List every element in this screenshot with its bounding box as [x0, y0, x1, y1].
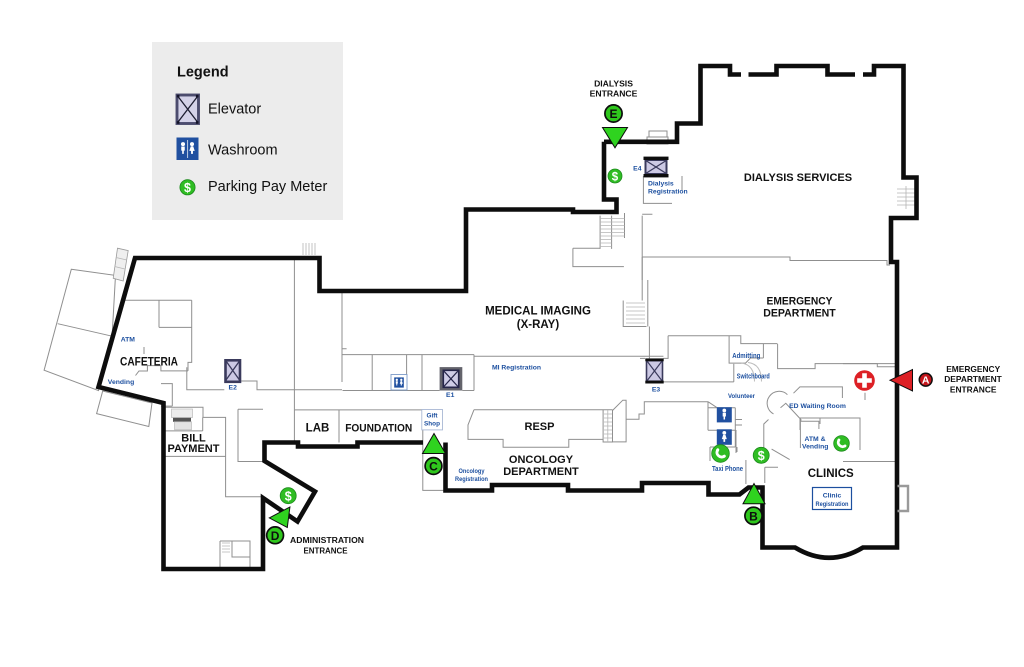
svg-text:Admitting: Admitting: [732, 353, 760, 360]
svg-text:Gift: Gift: [426, 413, 438, 420]
svg-text:Registration: Registration: [648, 189, 688, 196]
svg-text:Oncology: Oncology: [459, 468, 485, 475]
svg-text:MEDICAL IMAGING: MEDICAL IMAGING: [485, 306, 591, 318]
svg-text:LAB: LAB: [306, 423, 330, 435]
svg-text:DIALYSIS: DIALYSIS: [594, 79, 633, 89]
svg-text:Volunteer: Volunteer: [728, 393, 755, 400]
svg-text:D: D: [271, 529, 280, 543]
svg-text:Registration: Registration: [455, 476, 488, 483]
svg-text:ENTRANCE: ENTRANCE: [950, 385, 997, 395]
svg-text:$: $: [758, 449, 765, 463]
svg-text:EMERGENCY: EMERGENCY: [767, 295, 834, 307]
svg-text:ATM &: ATM &: [804, 436, 825, 443]
svg-text:Parking Pay Meter: Parking Pay Meter: [208, 179, 327, 195]
svg-text:DIALYSIS SERVICES: DIALYSIS SERVICES: [744, 172, 852, 184]
svg-text:CAFETERIA: CAFETERIA: [120, 356, 178, 368]
svg-text:C: C: [429, 460, 438, 474]
svg-text:DEPARTMENT: DEPARTMENT: [503, 466, 579, 478]
svg-text:DEPARTMENT: DEPARTMENT: [944, 374, 1002, 384]
svg-text:ONCOLOGY: ONCOLOGY: [509, 454, 574, 466]
svg-text:ATM: ATM: [121, 336, 136, 343]
svg-text:ED Waiting Room: ED Waiting Room: [789, 403, 846, 410]
svg-text:Clinic: Clinic: [823, 492, 842, 499]
svg-text:E: E: [609, 107, 617, 121]
svg-text:$: $: [285, 489, 292, 503]
svg-text:PAYMENT: PAYMENT: [168, 443, 220, 455]
svg-text:MI Registration: MI Registration: [492, 365, 541, 372]
svg-text:Dialysis: Dialysis: [648, 181, 674, 188]
svg-text:Vending: Vending: [108, 379, 134, 386]
svg-text:$: $: [612, 171, 619, 183]
svg-text:Taxi Phone: Taxi Phone: [712, 464, 743, 473]
svg-text:FOUNDATION: FOUNDATION: [345, 423, 412, 435]
svg-text:E4: E4: [633, 166, 642, 173]
svg-text:E2: E2: [229, 384, 238, 391]
svg-text:B: B: [749, 509, 758, 523]
svg-text:ADMINISTRATION: ADMINISTRATION: [290, 535, 364, 545]
svg-text:A: A: [922, 375, 930, 387]
svg-text:Shop: Shop: [424, 421, 440, 428]
svg-text:E3: E3: [652, 387, 661, 394]
svg-text:Washroom: Washroom: [208, 143, 278, 159]
svg-text:E1: E1: [446, 392, 455, 399]
svg-text:$: $: [184, 181, 191, 195]
svg-text:CLINICS: CLINICS: [808, 468, 854, 480]
svg-text:ENTRANCE: ENTRANCE: [590, 89, 638, 99]
svg-text:Elevator: Elevator: [208, 102, 261, 118]
svg-text:ENTRANCE: ENTRANCE: [304, 546, 348, 556]
svg-text:EMERGENCY: EMERGENCY: [946, 364, 1000, 374]
svg-text:Registration: Registration: [816, 501, 849, 508]
svg-text:(X-RAY): (X-RAY): [517, 319, 560, 331]
svg-text:Legend: Legend: [177, 64, 229, 80]
svg-text:Switchboard: Switchboard: [737, 373, 770, 380]
svg-text:RESP: RESP: [525, 421, 555, 433]
svg-text:Vending: Vending: [802, 443, 828, 450]
svg-text:DEPARTMENT: DEPARTMENT: [763, 308, 836, 320]
